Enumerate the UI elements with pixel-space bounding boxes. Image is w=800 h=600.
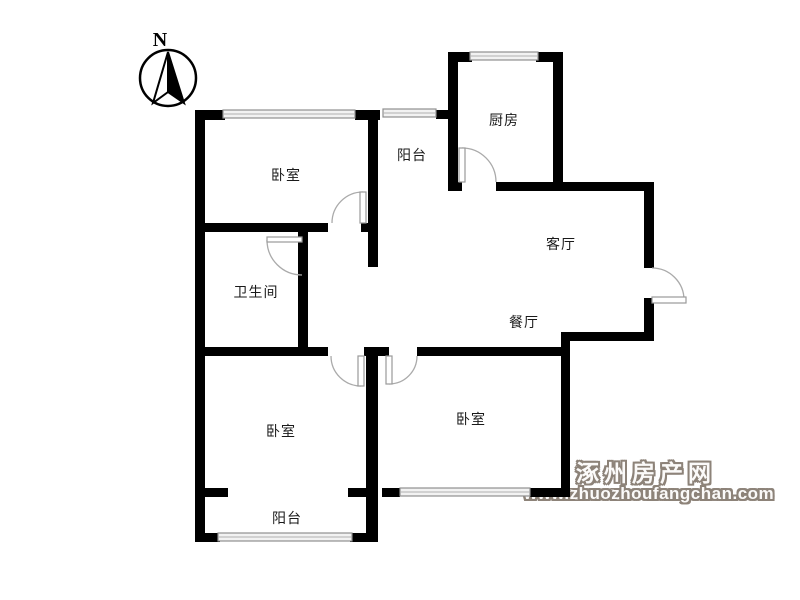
compass-needle-right <box>168 52 184 103</box>
compass-needle-left <box>153 52 168 103</box>
room-label-balcony-top: 阳台 <box>397 145 427 165</box>
room-label-kitchen: 厨房 <box>489 110 519 130</box>
door-bedroom-bottom-left <box>331 356 364 386</box>
room-label-living-room: 客厅 <box>546 234 576 254</box>
floorplan-canvas: 涿州房产网 www.zhuozhoufangchan.com <box>0 0 800 600</box>
compass: N <box>140 29 196 106</box>
door-kitchen <box>459 148 496 182</box>
window-bedroom-top-left <box>223 110 355 118</box>
room-label-bathroom: 卫生间 <box>234 282 279 302</box>
door-entrance <box>652 268 686 303</box>
door-bedroom-top-left <box>332 192 366 223</box>
window-bedroom-bottom-right <box>400 488 530 496</box>
door-bedroom-bottom-right <box>386 356 417 384</box>
room-label-dining-room: 餐厅 <box>509 312 539 332</box>
room-label-bedroom-bottom-right: 卧室 <box>456 409 486 429</box>
window-kitchen <box>470 52 538 60</box>
room-label-bedroom-top-left: 卧室 <box>271 165 301 185</box>
door-bathroom <box>267 237 302 275</box>
room-label-bedroom-bottom-left: 卧室 <box>266 421 296 441</box>
floorplan-drawing: N <box>0 0 800 600</box>
window-balcony-bottom <box>218 533 352 541</box>
north-label: N <box>153 29 168 51</box>
window-balcony-top <box>383 109 436 117</box>
room-label-balcony-bottom: 阳台 <box>272 508 302 528</box>
